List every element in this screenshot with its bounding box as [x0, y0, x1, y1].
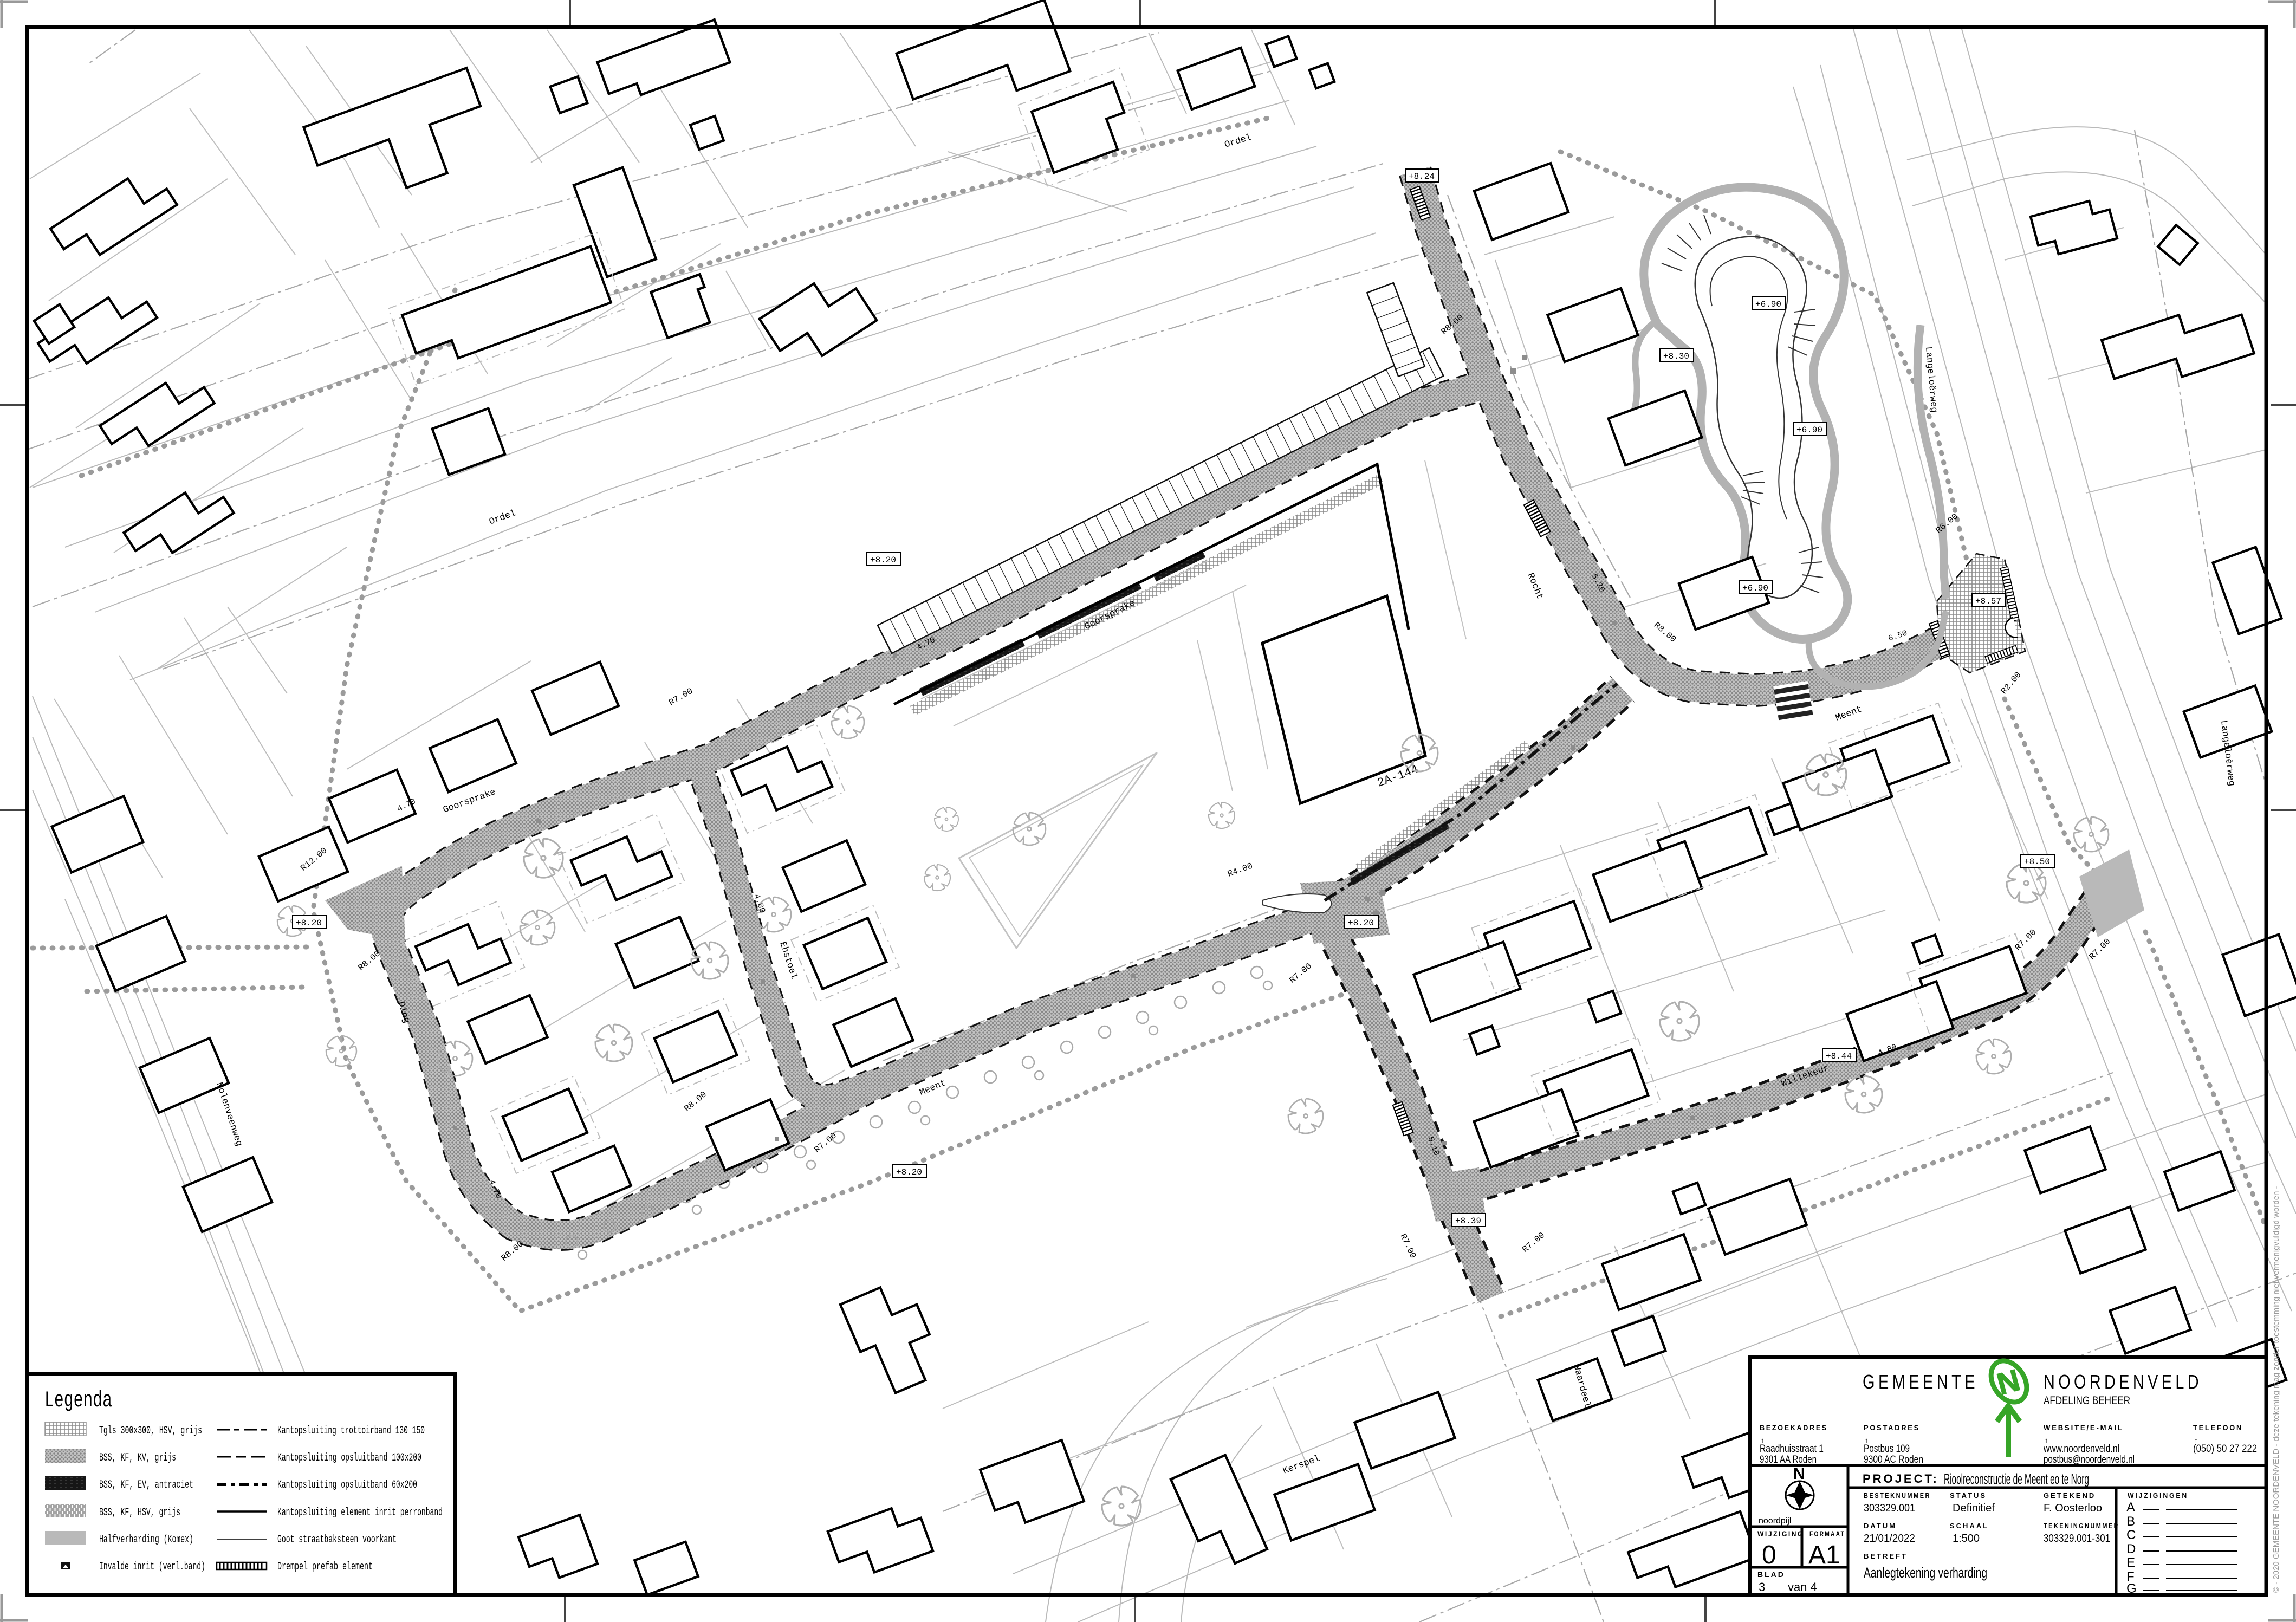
svg-text:www.noordenveld.nl: www.noordenveld.nl	[2043, 1443, 2119, 1455]
svg-text:Goot straatbaksteen voorkant: Goot straatbaksteen voorkant	[277, 1534, 397, 1546]
svg-text:Kantopsluiting opsluitband 60x: Kantopsluiting opsluitband 60x200	[277, 1479, 417, 1491]
svg-text:postbus@noordenveld.nl: postbus@noordenveld.nl	[2044, 1454, 2135, 1465]
svg-text:+8.20: +8.20	[870, 555, 896, 565]
svg-text:Kantopsluiting trottoirband 13: Kantopsluiting trottoirband 130 150	[277, 1425, 425, 1437]
svg-text:303329.001-301: 303329.001-301	[2044, 1533, 2110, 1545]
svg-text:+8.20: +8.20	[1348, 918, 1374, 928]
svg-text:F. Oosterloo: F. Oosterloo	[2044, 1502, 2102, 1514]
svg-text:(050) 50 27 222: (050) 50 27 222	[2193, 1443, 2257, 1455]
svg-text:9300 AC Roden: 9300 AC Roden	[1864, 1454, 1923, 1465]
svg-text:0: 0	[1762, 1541, 1776, 1569]
svg-text:A1: A1	[1808, 1541, 1840, 1569]
svg-text:Legenda: Legenda	[44, 1387, 112, 1413]
svg-text:+6.90: +6.90	[1796, 425, 1822, 435]
svg-text:+8.44: +8.44	[1826, 1052, 1852, 1061]
svg-text:© - 2020 GEMEENTE NOORDENVELD: © - 2020 GEMEENTE NOORDENVELD - deze tek…	[2272, 1186, 2281, 1593]
svg-text:21/01/2022: 21/01/2022	[1864, 1533, 1915, 1545]
svg-text:G: G	[2126, 1581, 2137, 1596]
svg-text:Invalde inrit (verl.band): Invalde inrit (verl.band)	[99, 1561, 205, 1573]
svg-text:SCHAAL: SCHAAL	[1950, 1522, 1989, 1530]
svg-text:B: B	[2126, 1514, 2135, 1529]
svg-text:Halfverharding (Komex): Halfverharding (Komex)	[99, 1534, 193, 1546]
svg-text:+8.20: +8.20	[296, 918, 322, 928]
svg-text:TEKENINGNUMMER: TEKENINGNUMMER	[2044, 1522, 2119, 1530]
svg-text:E: E	[2126, 1555, 2135, 1570]
svg-text:Aanlegtekening verharding: Aanlegtekening verharding	[1864, 1565, 1987, 1581]
svg-text:BLAD: BLAD	[1757, 1570, 1785, 1579]
svg-text:BSS, KF, EV, antraciet: BSS, KF, EV, antraciet	[99, 1479, 193, 1491]
svg-text:GETEKEND: GETEKEND	[2044, 1491, 2096, 1500]
svg-text:DATUM: DATUM	[1864, 1522, 1897, 1530]
svg-text:Kantopsluiting opsluitband 100: Kantopsluiting opsluitband 100x200	[277, 1452, 421, 1464]
svg-text:TELEFOON: TELEFOON	[2193, 1423, 2243, 1432]
svg-text:WEBSITE/E-MAIL: WEBSITE/E-MAIL	[2044, 1423, 2124, 1432]
svg-text:C: C	[2126, 1528, 2136, 1542]
svg-text:Tgls 300x300, HSV, grijs: Tgls 300x300, HSV, grijs	[99, 1425, 202, 1437]
svg-text:BEZOEKADRES: BEZOEKADRES	[1760, 1423, 1828, 1432]
svg-text:BETREFT: BETREFT	[1864, 1552, 1908, 1560]
svg-text:STATUS: STATUS	[1950, 1491, 1987, 1500]
svg-text:N: N	[1793, 1465, 1805, 1483]
svg-text:POSTADRES: POSTADRES	[1864, 1423, 1920, 1432]
svg-text:+8.50: +8.50	[2024, 857, 2050, 867]
svg-text:BSS, KF, KV, grijs: BSS, KF, KV, grijs	[99, 1452, 176, 1464]
svg-text:+8.30: +8.30	[1663, 352, 1689, 361]
svg-text:+8.57: +8.57	[1975, 596, 2001, 606]
svg-text:noordpijl: noordpijl	[1759, 1516, 1791, 1526]
svg-text:Postbus 109: Postbus 109	[1864, 1443, 1910, 1455]
svg-text:WIJZIGING: WIJZIGING	[1757, 1529, 1804, 1538]
svg-text:9301 AA Roden: 9301 AA Roden	[1760, 1454, 1817, 1465]
svg-text:303329.001: 303329.001	[1864, 1502, 1915, 1514]
svg-text:Kantopsluiting element inrit p: Kantopsluiting element inrit perronband	[277, 1507, 443, 1519]
svg-text:GEMEENTE: GEMEENTE	[1863, 1371, 1979, 1393]
svg-text:Rioolreconstructie de Meent eo: Rioolreconstructie de Meent eo te Norg	[1944, 1471, 2089, 1487]
svg-text:Drempel prefab element: Drempel prefab element	[277, 1561, 373, 1573]
svg-text:+6.90: +6.90	[1755, 300, 1781, 309]
svg-text:BESTEKNUMMER: BESTEKNUMMER	[1864, 1491, 1931, 1500]
svg-text:+8.20: +8.20	[896, 1167, 922, 1177]
svg-text:FORMAAT: FORMAAT	[1809, 1529, 1845, 1538]
svg-text:D: D	[2126, 1542, 2136, 1556]
svg-text:van 4: van 4	[1788, 1580, 1817, 1594]
svg-text:A: A	[2126, 1500, 2135, 1515]
svg-text:+8.39: +8.39	[1455, 1216, 1481, 1226]
svg-text:BSS, KF, HSV, grijs: BSS, KF, HSV, grijs	[99, 1507, 180, 1519]
svg-text:+8.24: +8.24	[1409, 172, 1435, 181]
svg-text:3: 3	[1759, 1580, 1765, 1594]
svg-text:NOORDENVELD: NOORDENVELD	[2044, 1371, 2202, 1393]
svg-text:Definitief: Definitief	[1953, 1502, 1995, 1514]
svg-text:+6.90: +6.90	[1742, 583, 1768, 593]
svg-text:PROJECT:: PROJECT:	[1863, 1472, 1939, 1485]
svg-text:AFDELING BEHEER: AFDELING BEHEER	[2044, 1394, 2130, 1407]
svg-text:Raadhuisstraat 1: Raadhuisstraat 1	[1760, 1443, 1824, 1455]
svg-text:1:500: 1:500	[1953, 1533, 1980, 1545]
svg-text:WIJZIGINGEN: WIJZIGINGEN	[2128, 1491, 2188, 1500]
